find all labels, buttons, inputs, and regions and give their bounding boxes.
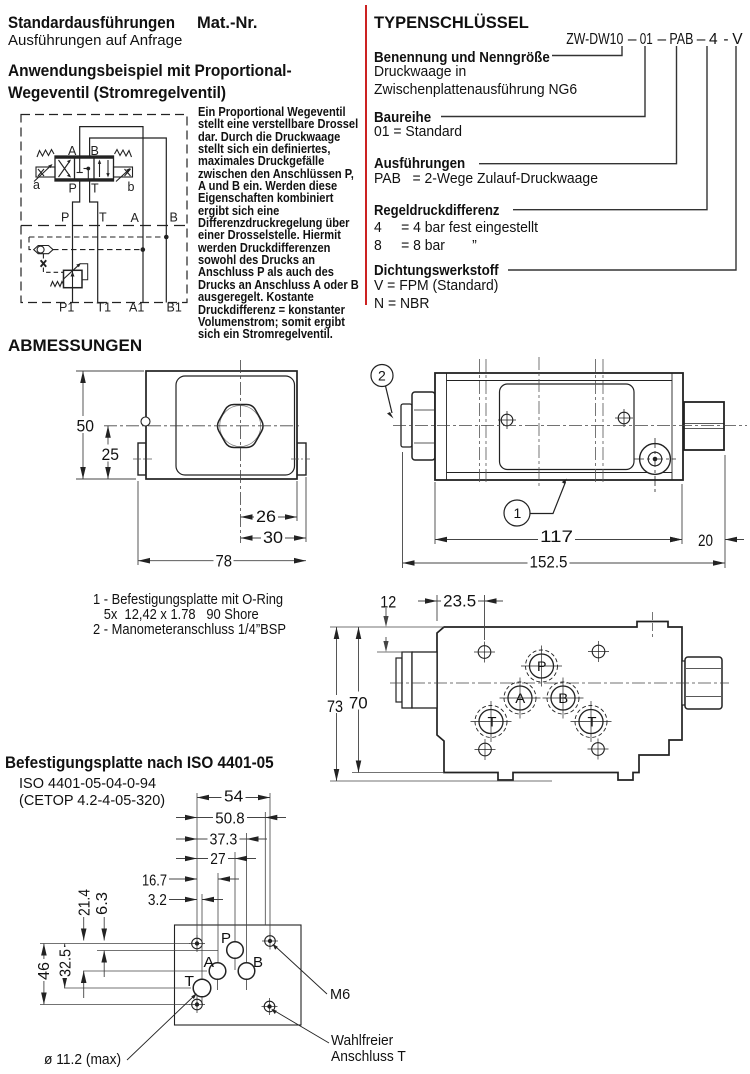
svg-text:50: 50 <box>77 418 95 436</box>
svg-text:T: T <box>488 714 497 730</box>
svg-text:T: T <box>91 182 99 196</box>
svg-text:37.3: 37.3 <box>210 832 238 849</box>
svg-text:46: 46 <box>36 962 53 980</box>
svg-text:6.3: 6.3 <box>94 892 111 915</box>
svg-text:P: P <box>221 931 231 947</box>
svg-text:25: 25 <box>102 446 120 464</box>
svg-text:P: P <box>61 211 69 225</box>
svg-text:B: B <box>170 211 178 225</box>
svg-text:20: 20 <box>698 532 713 550</box>
svg-text:78: 78 <box>216 553 233 571</box>
svg-text:54: 54 <box>224 789 243 806</box>
svg-text:B1: B1 <box>167 301 182 315</box>
svg-text:30: 30 <box>263 529 283 547</box>
svg-text:P: P <box>69 182 77 196</box>
svg-text:-: - <box>723 31 728 48</box>
svg-text:ZW-DW10: ZW-DW10 <box>566 31 623 48</box>
svg-text:P1: P1 <box>59 301 74 315</box>
svg-text:PAB: PAB <box>669 31 693 48</box>
svg-text:70: 70 <box>349 695 368 713</box>
svg-text:B: B <box>558 690 568 706</box>
svg-text:4: 4 <box>709 31 718 48</box>
svg-text:A: A <box>68 144 77 158</box>
svg-text:16.7: 16.7 <box>142 873 167 890</box>
svg-text:–: – <box>658 31 667 48</box>
svg-text:A: A <box>131 211 140 225</box>
svg-text:27: 27 <box>210 851 225 868</box>
svg-text:12: 12 <box>380 594 396 612</box>
svg-text:a: a <box>33 178 40 192</box>
svg-text:P: P <box>537 658 547 674</box>
svg-text:T: T <box>588 714 597 730</box>
svg-text:1: 1 <box>514 505 522 521</box>
svg-text:73: 73 <box>327 698 343 716</box>
svg-text:2: 2 <box>378 368 386 384</box>
svg-text:A: A <box>515 690 526 706</box>
svg-text:23.5: 23.5 <box>443 593 476 611</box>
svg-text:–: – <box>697 31 706 48</box>
svg-text:T: T <box>99 211 107 225</box>
svg-text:B: B <box>253 955 263 971</box>
svg-text:26: 26 <box>256 508 276 526</box>
svg-text:A: A <box>204 955 215 971</box>
svg-text:21.4: 21.4 <box>77 889 94 916</box>
svg-text:A1: A1 <box>129 301 144 315</box>
svg-text:152.5: 152.5 <box>530 554 568 572</box>
svg-text:T: T <box>185 974 195 990</box>
svg-text:117: 117 <box>540 528 573 546</box>
svg-text:V: V <box>732 31 743 48</box>
svg-text:32.5: 32.5 <box>58 949 75 977</box>
svg-text:01: 01 <box>640 31 653 48</box>
svg-text:–: – <box>628 31 637 48</box>
svg-text:b: b <box>128 180 135 194</box>
svg-text:B: B <box>91 144 99 158</box>
svg-text:T1: T1 <box>97 301 112 315</box>
svg-text:50.8: 50.8 <box>215 811 244 828</box>
svg-text:3.2: 3.2 <box>148 892 167 909</box>
